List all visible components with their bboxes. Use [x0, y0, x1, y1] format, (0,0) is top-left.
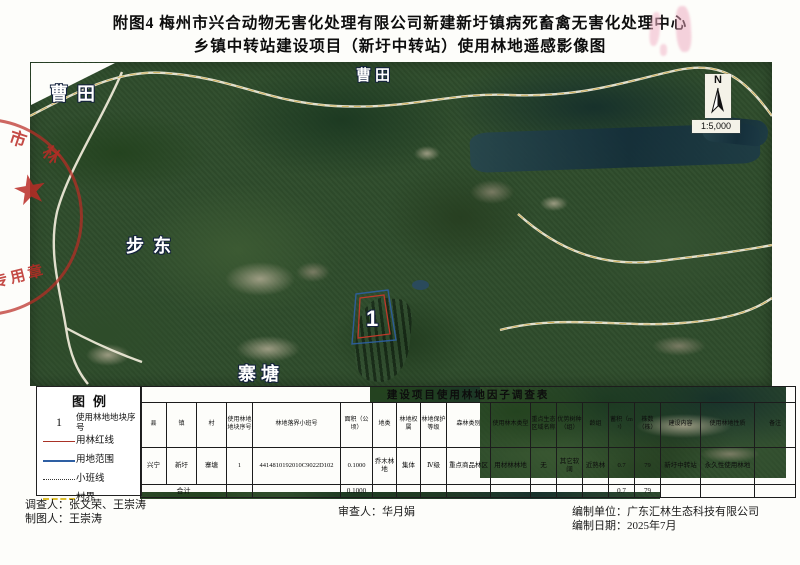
col-forest-use-type: 使用林木类型 — [491, 403, 531, 448]
col-volume: 蓄积（m³） — [609, 403, 635, 448]
total-volume: 0.7 — [609, 485, 635, 498]
legend-label: 小班线 — [76, 474, 105, 485]
cell-land-type: 乔木林地 — [373, 448, 397, 485]
cell-plot-no: 1 — [227, 448, 253, 485]
legend-title: 图例 — [42, 391, 136, 410]
total-empty — [557, 485, 583, 498]
cell-forest-use-type: 用材林林地 — [491, 448, 531, 485]
cell-protection-grade: Ⅳ级 — [421, 448, 447, 485]
legend-label: 使用林地地块序号 — [76, 413, 136, 433]
col-plot-no: 使用林地地块序号 — [227, 403, 253, 448]
legend-box: 图例 1 使用林地地块序号 用林红线 用地范围 小班线 村界 — [36, 386, 142, 496]
table-header-row: 县 镇 村 使用林地地块序号 林地落界小班号 面积（公顷） 地类 林地权属 林地… — [141, 403, 796, 448]
reviewer-line: 审查人：华月娟 — [338, 503, 415, 519]
place-label-caotian-left: 曹田 — [50, 80, 104, 106]
cell-county: 兴宁 — [141, 448, 167, 485]
legend-symbol-redline — [42, 441, 76, 442]
cell-town: 新圩 — [167, 448, 197, 485]
total-empty — [421, 485, 447, 498]
col-use-nature: 使用林地性质 — [701, 403, 755, 448]
table-title: 建设项目使用林地因子调查表 — [141, 387, 796, 403]
cell-forest-category: 重点商品林区 — [447, 448, 491, 485]
road-lines — [30, 68, 772, 384]
legend-symbol-dotted-line — [42, 479, 76, 480]
total-empty — [531, 485, 557, 498]
col-construction: 建设内容 — [661, 403, 701, 448]
total-empty — [397, 485, 421, 498]
col-age-group: 龄组 — [583, 403, 609, 448]
cell-remarks — [755, 448, 796, 485]
table-data-row: 兴宁 新圩 寨塘 1 4414810192010C9022D102 0.1000… — [141, 448, 796, 485]
total-empty — [253, 485, 341, 498]
col-remarks: 备注 — [755, 403, 796, 448]
road-center-dashes — [30, 68, 772, 330]
col-ownership: 林地权属 — [397, 403, 421, 448]
forest-land-survey-table: 建设项目使用林地因子调查表 县 镇 村 使用林地地块序号 林地落界小班号 面积（… — [140, 386, 796, 498]
cell-dominant-species: 其它软阔 — [557, 448, 583, 485]
cell-eco-region: 无 — [531, 448, 557, 485]
col-forest-category: 森林类别 — [447, 403, 491, 448]
cell-use-nature: 永久性使用林地 — [701, 448, 755, 485]
legend-label: 用林红线 — [76, 436, 114, 447]
col-land-type: 地类 — [373, 403, 397, 448]
place-label-budong: 步东 — [126, 232, 180, 258]
legend-label: 用地范围 — [76, 455, 114, 466]
legend-item-redline: 用林红线 — [42, 432, 136, 451]
col-county: 县 — [141, 403, 167, 448]
total-empty — [227, 485, 253, 498]
table-total-row: 合计 0.1000 0.7 79 — [141, 485, 796, 498]
legend-symbol-blueline — [42, 460, 76, 462]
total-empty — [755, 485, 796, 498]
cell-area: 0.1000 — [341, 448, 373, 485]
legend-symbol-plot-number: 1 — [42, 415, 76, 430]
cell-age-group: 近熟林 — [583, 448, 609, 485]
col-town: 镇 — [167, 403, 197, 448]
total-trees: 79 — [635, 485, 661, 498]
col-subcompartment-code: 林地落界小班号 — [253, 403, 341, 448]
col-protection-grade: 林地保护等级 — [421, 403, 447, 448]
compass-needle-icon — [710, 87, 726, 114]
legend-item-plot-number: 1 使用林地地块序号 — [42, 413, 136, 432]
col-dominant-species: 优势树种（组） — [557, 403, 583, 448]
total-label: 合计 — [141, 485, 227, 498]
total-empty — [701, 485, 755, 498]
cell-subcompartment-code: 4414810192010C9022D102 — [253, 448, 341, 485]
col-area: 面积（公顷） — [341, 403, 373, 448]
north-label: N — [714, 74, 722, 87]
legend-item-land-extent: 用地范围 — [42, 451, 136, 470]
plot-number-marker: 1 — [366, 306, 378, 332]
map-scale: 1:5,000 — [692, 120, 740, 133]
legend-item-subcompartment: 小班线 — [42, 470, 136, 489]
place-label-zhaitang: 寨塘 — [238, 360, 284, 386]
document-page: 附图4 梅州市兴合动物无害化处理有限公司新建新圩镇病死畜禽无害化处理中心 乡镇中… — [0, 0, 800, 565]
roads-overlay — [30, 62, 772, 386]
seal-char-top: 市 — [7, 123, 31, 152]
scan-artifact — [660, 44, 667, 56]
cell-volume: 0.7 — [609, 448, 635, 485]
total-empty — [583, 485, 609, 498]
cell-ownership: 集体 — [397, 448, 421, 485]
col-eco-region: 重点生态区域名称 — [531, 403, 557, 448]
total-area: 0.1000 — [341, 485, 373, 498]
total-empty — [373, 485, 397, 498]
total-empty — [447, 485, 491, 498]
total-empty — [491, 485, 531, 498]
cartographer-line: 制图人：王崇涛 — [25, 510, 102, 526]
cell-tree-count: 79 — [635, 448, 661, 485]
cell-village: 寨塘 — [197, 448, 227, 485]
compile-date-line: 编制日期：2025年7月 — [572, 517, 677, 533]
total-empty — [661, 485, 701, 498]
table-title-row: 建设项目使用林地因子调查表 — [141, 387, 796, 403]
col-village: 村 — [197, 403, 227, 448]
north-arrow: N — [705, 74, 731, 118]
cell-construction: 新圩中转站 — [661, 448, 701, 485]
col-tree-count: 株数（株） — [635, 403, 661, 448]
place-label-caotian-top: 曹田 — [356, 64, 394, 85]
